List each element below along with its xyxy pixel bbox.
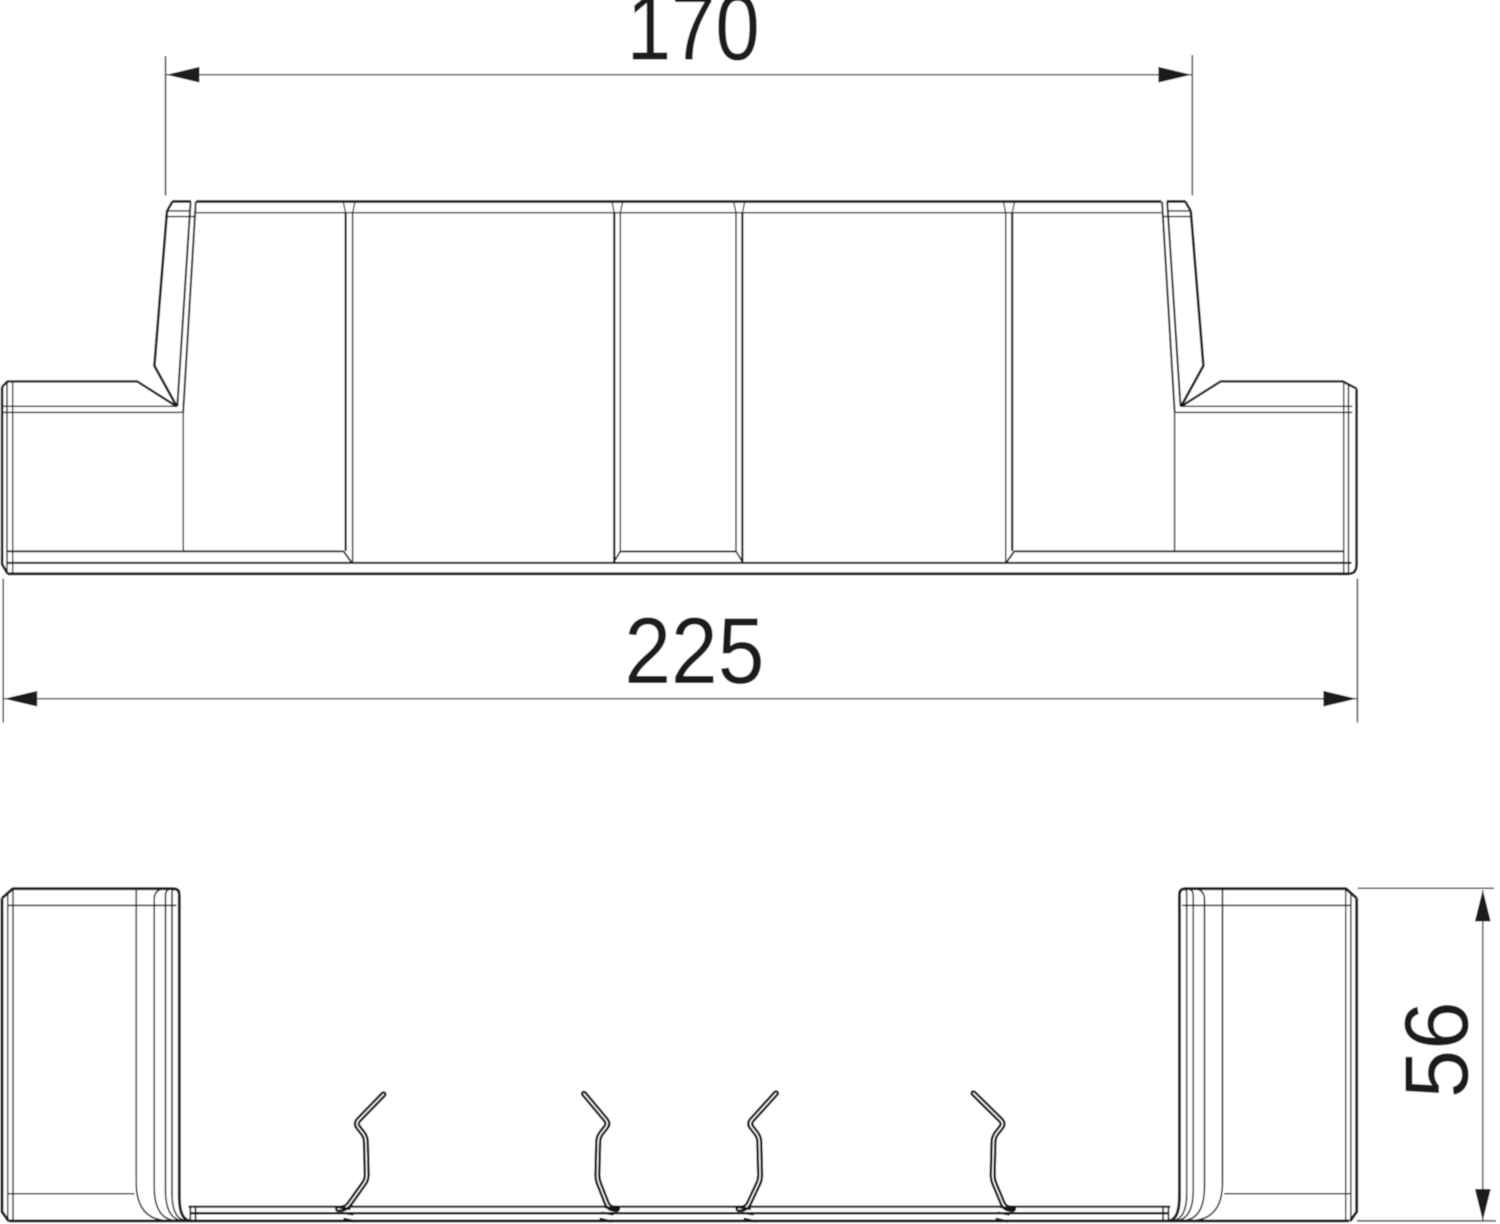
svg-text:170: 170 [627, 0, 760, 79]
svg-text:56: 56 [1388, 1001, 1488, 1098]
svg-text:225: 225 [624, 598, 764, 703]
